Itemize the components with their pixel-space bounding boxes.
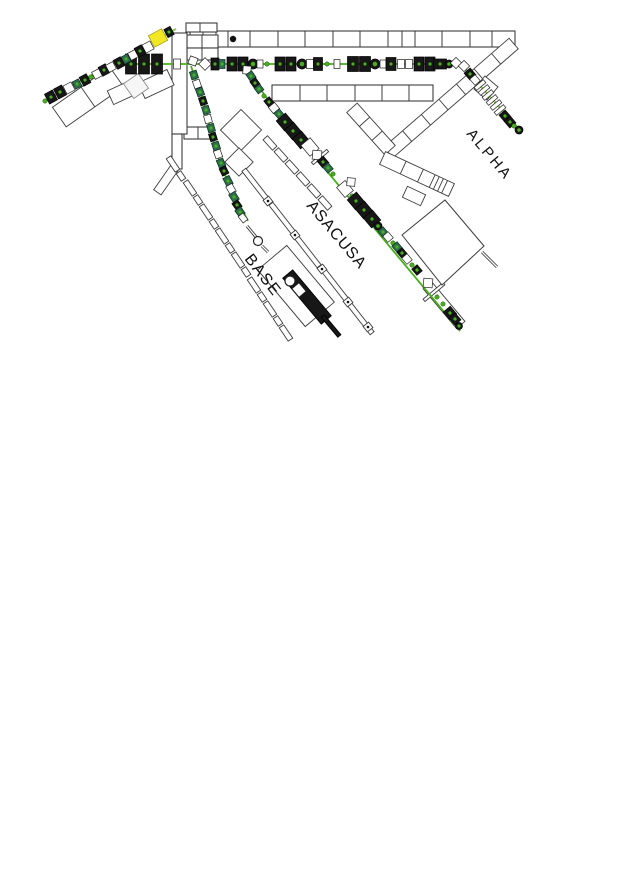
wall-face xyxy=(285,160,299,174)
wall-chain xyxy=(263,301,277,317)
round-magnet-core xyxy=(517,128,521,132)
survey-dot xyxy=(347,301,350,304)
element-body xyxy=(334,60,340,69)
base-trap-rail xyxy=(321,315,341,337)
element-body xyxy=(307,60,314,69)
dipole-magnet xyxy=(314,58,323,71)
wall-face xyxy=(273,316,283,327)
wall-face xyxy=(220,109,261,150)
element-core xyxy=(363,62,366,65)
survey-dot xyxy=(367,326,370,329)
vacuum-box xyxy=(406,60,413,69)
element-core xyxy=(289,62,292,65)
beam-marker-dot xyxy=(262,94,266,98)
dipole-magnet xyxy=(348,57,359,72)
wall-corridor xyxy=(269,202,295,233)
survey-dot xyxy=(230,36,236,42)
wall-band xyxy=(186,23,217,32)
wall-chain xyxy=(199,204,213,220)
wall-face xyxy=(402,186,425,205)
vacuum-box xyxy=(174,59,181,69)
dipole-magnet xyxy=(434,59,447,69)
beam-marker-dot xyxy=(410,263,414,267)
round-magnet-core xyxy=(457,324,460,327)
element-core xyxy=(389,62,392,65)
dipole-magnet xyxy=(211,58,219,70)
element-body xyxy=(398,60,405,69)
element-core xyxy=(213,62,216,65)
vacuum-box xyxy=(334,60,340,69)
wall-column xyxy=(172,33,187,134)
element-core xyxy=(155,62,158,65)
round-magnet-core xyxy=(376,224,380,228)
element-core xyxy=(220,62,223,65)
dipole-magnet xyxy=(198,96,207,106)
room-diamond xyxy=(220,109,261,150)
vacuum-box xyxy=(398,60,405,69)
beam-pipe-core xyxy=(482,252,497,267)
wall-chain xyxy=(307,184,321,198)
wall-corridor xyxy=(242,168,268,199)
wall-chain xyxy=(225,243,235,254)
dipole-magnet xyxy=(360,57,371,72)
wall-face xyxy=(193,195,203,206)
survey-dot xyxy=(321,268,324,271)
element-core xyxy=(241,62,244,65)
corridor-l-a xyxy=(347,103,396,155)
wall-face xyxy=(307,184,321,198)
room xyxy=(402,186,425,205)
element-core xyxy=(129,62,132,65)
wall-chain xyxy=(263,136,277,150)
round-magnet-core xyxy=(373,62,378,67)
wall-chain xyxy=(285,160,299,174)
survey-dot xyxy=(294,234,297,237)
quad-magnet xyxy=(219,60,225,69)
wall-face xyxy=(296,172,310,186)
beam-marker-dot xyxy=(325,62,329,66)
element-core xyxy=(316,62,319,65)
beam-marker-dot xyxy=(43,99,47,103)
wall-face xyxy=(215,228,229,244)
wall-face xyxy=(242,168,268,199)
wall-face xyxy=(199,204,213,220)
wall-chain xyxy=(274,148,288,162)
element-body xyxy=(406,60,413,69)
dipole-magnet xyxy=(386,58,396,71)
beam-marker-dot xyxy=(331,172,335,176)
dipole-magnet xyxy=(286,57,296,71)
quad-magnet xyxy=(201,105,210,115)
round-magnet-core xyxy=(251,62,256,67)
beam-marker-dot xyxy=(89,75,93,79)
ring-symbol xyxy=(254,237,263,246)
wall-band xyxy=(190,31,515,47)
beam-marker-dot xyxy=(441,302,445,306)
quad-magnet xyxy=(189,70,198,80)
beam-marker-dot xyxy=(265,62,269,66)
element-core xyxy=(438,62,441,65)
wall-chain xyxy=(183,180,197,196)
dipole-magnet xyxy=(208,132,217,142)
wall-chain xyxy=(279,325,293,341)
beam-pipe-core xyxy=(247,226,256,237)
vacuum-box xyxy=(347,178,356,187)
element-core xyxy=(142,62,145,65)
wall-face xyxy=(176,171,186,182)
wall-chain xyxy=(176,171,186,182)
label-alpha: ALPHA xyxy=(463,126,516,184)
wall-face xyxy=(269,202,295,233)
element-body xyxy=(174,59,181,69)
wall-face xyxy=(183,180,197,196)
element-body xyxy=(204,114,213,124)
wall-chain xyxy=(257,292,267,303)
accelerator-facility-layout: ALPHAASACUSABASE xyxy=(0,0,623,880)
wall-face xyxy=(225,243,235,254)
wall-face xyxy=(321,315,341,337)
wall-chain xyxy=(209,219,219,230)
wall-face xyxy=(209,219,219,230)
dipole-magnet xyxy=(414,57,424,71)
wall-face xyxy=(263,136,277,150)
wall-face xyxy=(257,292,267,303)
wall-chain xyxy=(296,172,310,186)
element-body xyxy=(423,278,433,288)
survey-dot xyxy=(267,200,270,203)
element-body xyxy=(257,60,263,68)
element-core xyxy=(230,62,233,65)
wall-face xyxy=(263,301,277,317)
vacuum-box xyxy=(380,60,386,68)
vacuum-box xyxy=(423,278,433,288)
element-core xyxy=(351,62,354,65)
vacuum-box xyxy=(257,60,263,68)
wall-face xyxy=(279,325,293,341)
beam-marker-dot xyxy=(435,295,439,299)
dipole-magnet xyxy=(227,57,237,71)
dipole-magnet xyxy=(152,54,163,74)
wall-face xyxy=(347,103,396,155)
dipole-magnet xyxy=(275,57,285,71)
ring-symbol xyxy=(285,276,295,286)
element-core xyxy=(428,62,431,65)
wall-face xyxy=(274,148,288,162)
dipole-magnet xyxy=(139,54,150,74)
element-body xyxy=(380,60,386,68)
element-core xyxy=(278,62,281,65)
vacuum-box xyxy=(204,114,213,124)
element-body xyxy=(347,178,356,187)
wall-chain xyxy=(273,316,283,327)
element-core xyxy=(417,62,420,65)
wall-chain xyxy=(193,195,203,206)
vacuum-box xyxy=(307,60,314,69)
corridor-l-b xyxy=(380,152,455,197)
round-magnet-core xyxy=(300,62,305,67)
wall-chain xyxy=(215,228,229,244)
